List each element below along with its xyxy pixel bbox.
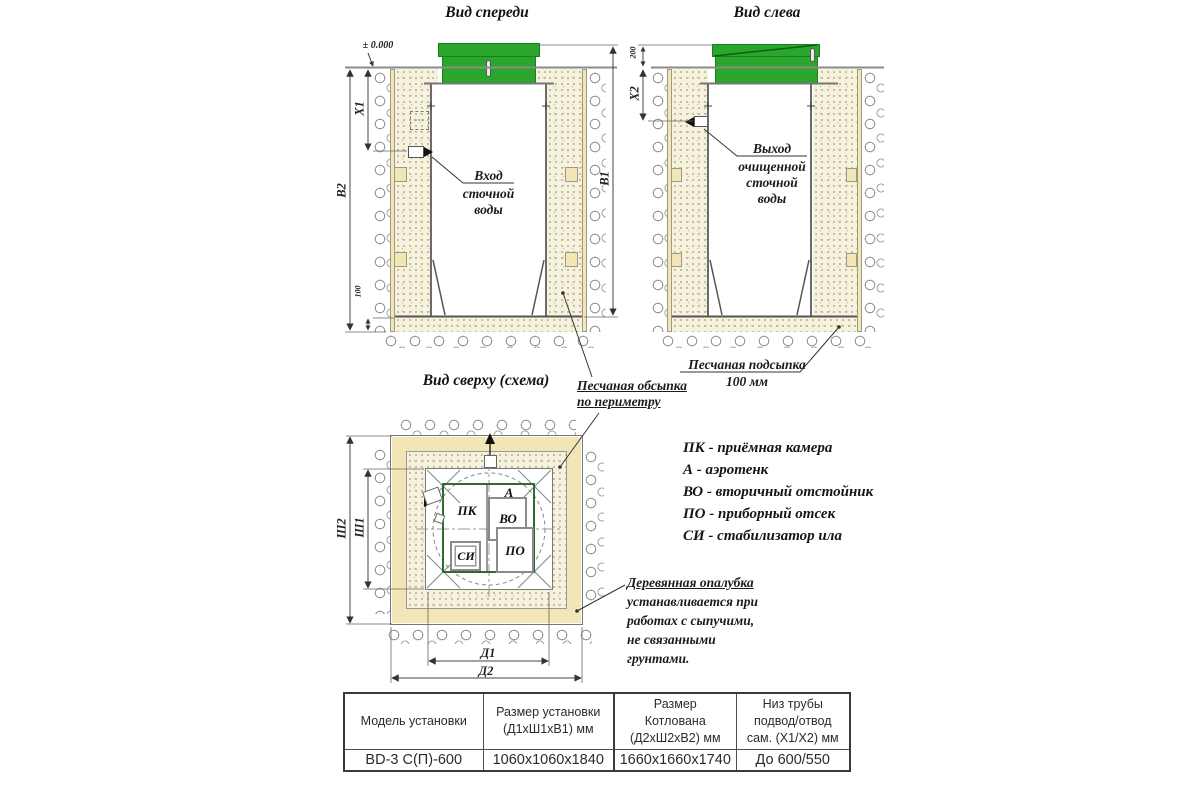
header-unit-size: Размер установки (Д1хШ1хВ1) мм <box>483 693 614 749</box>
header-pipe-depth: Низ трубы подвод/отвод сам. (Х1/Х2) мм <box>736 693 850 749</box>
front-lid-top <box>438 43 540 57</box>
front-stake-right-upper <box>565 167 578 182</box>
front-inlet-dashed-box <box>410 111 429 130</box>
inlet-label-title: Вход <box>463 168 514 184</box>
cell-model: BD-3 С(П)-600 <box>344 749 483 771</box>
left-ground-hatch-bottom <box>660 332 875 348</box>
front-lid-handle <box>486 60 491 77</box>
top-outlet-pipe-stub <box>484 455 497 468</box>
formwork-note-rest: устанавливается при работах с сыпучими, … <box>627 593 777 669</box>
left-sand-bed <box>672 317 857 332</box>
front-view-title: Вид спереди <box>427 4 547 22</box>
left-ground-hatch-right <box>862 69 884 332</box>
left-sand-fill-left <box>672 69 708 317</box>
front-ground-hatch-right <box>587 69 606 332</box>
backfill-note: Песчаная обсыпка по периметру <box>577 378 707 410</box>
inlet-label-rest: сточной воды <box>455 186 522 218</box>
front-stake-right-lower <box>565 252 578 267</box>
left-outlet-pipe <box>694 116 708 127</box>
legend-item-a: А - аэротенк <box>683 459 913 481</box>
spec-table-header-row: Модель установки Размер установки (Д1хШ1… <box>344 693 850 749</box>
spec-table: Модель установки Размер установки (Д1хШ1… <box>343 692 851 772</box>
front-ground-hatch-left <box>372 69 392 332</box>
front-formwork-right <box>582 69 587 332</box>
dim-label-d1: Д1 <box>472 646 504 661</box>
sand-bed-note-title: Песчаная подсыпка <box>677 357 817 373</box>
front-stake-left-upper <box>394 167 407 182</box>
left-view-title: Вид слева <box>707 4 827 22</box>
dim-label-b1: В1 <box>598 164 613 194</box>
compartment-label-pk: ПК <box>447 503 487 519</box>
header-model: Модель установки <box>344 693 483 749</box>
front-sand-fill-left <box>395 69 430 317</box>
front-sand-fill-topleft <box>430 69 438 84</box>
dim-label-200: 200 <box>629 41 638 65</box>
outlet-label-title: Выход <box>737 141 807 157</box>
dim-label-b2: В2 <box>335 176 350 206</box>
dim-label-100: 100 <box>354 280 363 304</box>
left-stake-right-lower <box>846 253 857 267</box>
left-lid-body <box>715 56 818 84</box>
front-ground-hatch-bottom <box>383 332 595 348</box>
left-stake-left-lower <box>671 253 682 267</box>
installation-drawing: Вид спереди Вид слева Вид сверху (схема) <box>0 0 1200 800</box>
cell-unit-size: 1060х1060х1840 <box>483 749 614 771</box>
left-stake-right-upper <box>846 168 857 182</box>
compartment-label-si: СИ <box>452 549 480 564</box>
dim-label-x1: X1 <box>353 94 368 124</box>
legend-item-po: ПО - приборный отсек <box>683 503 913 525</box>
top-ground-hatch-bottom <box>386 626 592 644</box>
legend-item-pk: ПК - приёмная камера <box>683 437 913 459</box>
dim-label-d2: Д2 <box>470 664 502 679</box>
cell-pipe-depth: До 600/550 <box>736 749 850 771</box>
compartment-label-vo: ВО <box>492 511 524 527</box>
header-pit-size: Размер Котлована (Д2хШ2хВ2) мм <box>614 693 736 749</box>
dim-label-sh2: Ш2 <box>335 514 350 544</box>
formwork-note-title: Деревянная опалубка <box>627 575 777 591</box>
legend-item-vo: ВО - вторичный отстойник <box>683 481 913 503</box>
legend-item-si: СИ - стабилизатор ила <box>683 525 913 547</box>
left-stake-left-upper <box>671 168 682 182</box>
front-sand-bed <box>395 317 582 332</box>
front-sand-fill-topright <box>536 69 547 84</box>
top-ground-hatch-right <box>583 448 604 612</box>
compartment-label-a: А <box>500 485 518 501</box>
top-view-title: Вид сверху (схема) <box>406 372 566 390</box>
left-sand-fill-right <box>813 69 857 317</box>
spec-table-data-row: BD-3 С(П)-600 1060х1060х1840 1660х1660х1… <box>344 749 850 771</box>
compartment-label-po: ПО <box>499 543 531 559</box>
front-inlet-pipe <box>408 146 424 158</box>
left-formwork-right <box>857 69 862 332</box>
front-sand-fill-right <box>547 69 582 317</box>
cell-pit-size: 1660х1660х1740 <box>614 749 736 771</box>
front-stake-left-lower <box>394 252 407 267</box>
level-mark-label: ± 0.000 <box>352 40 404 51</box>
dim-label-sh1: Ш1 <box>353 513 368 543</box>
dim-label-x2: X2 <box>628 79 643 109</box>
outlet-label-rest: очищенной сточной воды <box>726 159 818 206</box>
left-lid-handle <box>810 48 815 62</box>
legend: ПК - приёмная камера А - аэротенк ВО - в… <box>683 437 913 547</box>
top-ground-hatch-top <box>398 416 576 435</box>
top-ground-hatch-left <box>372 446 390 614</box>
